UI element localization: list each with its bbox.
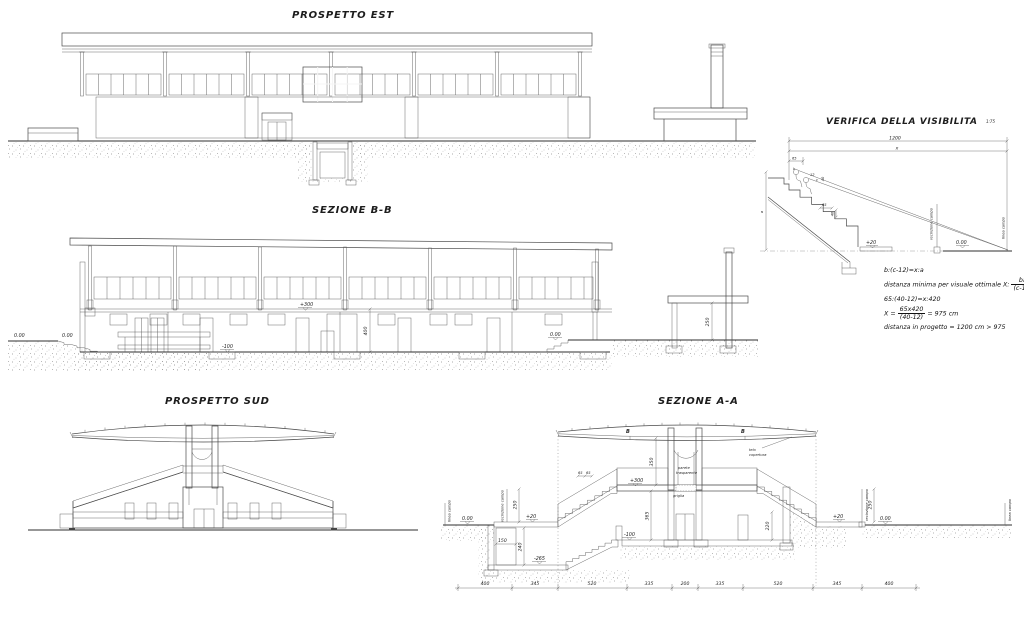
verifica-linea-campo: linea campo [1002,216,1006,239]
formula-4-den: (40-12) [898,314,926,321]
bb-level-field: 0.00 [14,333,25,339]
tribune-section [666,248,748,353]
griglia-label: griglia [673,494,684,498]
aa-linea-campo-left: linea campo [448,499,452,522]
prospetto-est-drawing: PROSPETTO EST [8,10,756,185]
verifica-walkway [860,247,892,251]
bb-height-dim: 400 [363,327,369,336]
section-b-marker-left: B [626,429,630,435]
aa-interior-dim: 365 [645,512,651,521]
step-dim-b: 65 [586,471,591,475]
siding-band [96,97,590,138]
aa-plus20-right: +20 [833,514,843,520]
bb-level-ramp: 0.00 [62,333,73,339]
side-building [654,44,747,141]
formula-2: distanza minima per visuale ottimale X: … [884,277,1024,292]
windows [125,503,281,519]
right-exit [540,262,758,352]
formula-1: b:(c-12)=x:a [884,264,1024,277]
sheet-svg: PROSPETTO EST [0,0,1024,617]
aa-level-minus100: -100 [624,532,635,538]
prospetto-est-title: PROSPETTO EST [292,10,394,21]
side-walls [664,119,736,141]
formula-2-den: (c-12) [1011,285,1024,292]
gray-cabinet [321,331,334,352]
aa-under-floor [620,546,795,560]
aa-linea-campo-right: linea campo [1008,498,1012,521]
chain-seg-6: 335 [716,581,725,587]
aa-level-minus265: -265 [534,556,545,562]
aa-under-trench [480,570,630,583]
underground-stair [566,540,618,570]
visibility-formulas: b:(c-12)=x:a distanza minima per visuale… [884,264,1024,335]
left-end-wall [80,262,85,352]
ground-texture [8,142,756,158]
left-annex [28,128,78,141]
bb-level-beam: +300 [300,302,313,308]
room-right-wall [783,487,790,543]
griglia-door [327,314,357,352]
roof-band [70,238,612,250]
aa-right-field [816,489,1012,527]
verifica-extension-lines [789,137,1007,251]
pylon-arch [192,449,212,460]
wing-left [60,514,73,528]
aa-recinzione-left: recinzione campo [501,489,505,522]
pylon-right [212,426,218,488]
aa-door-dim: 220 [765,522,771,531]
verifica-dim-a-line [765,171,768,252]
stair-strip-left [245,97,258,138]
balustrade-right [223,512,333,518]
canopy [70,423,336,443]
formula-2-text: distanza minima per visuale ottimale X: [884,282,1009,289]
trench-floor [488,565,568,570]
chain-seg-5: 200 [681,581,690,587]
aa-plus20-left: +20 [526,514,536,520]
verifica-stand-profile [768,178,892,274]
aa-canopy [556,423,818,441]
aa-fence-dim-left: 250 [513,501,519,510]
formula-2-fraction: ba(c-12) [1011,277,1024,292]
verifica-var-a: a [760,211,764,213]
aa-level-zero-right: 0.00 [880,516,891,522]
prospetto-sud-drawing: PROSPETTO SUD [28,396,418,531]
walkway-beam [80,309,612,312]
sezione-aa-title: SEZIONE A-A [658,396,739,407]
wing-right [333,514,346,528]
ladder-shaft [496,528,516,565]
verifica-zero: 0.00 [956,240,967,246]
verifica-recinzione: recinzione campo [930,207,934,240]
central-block-lines [183,466,223,505]
stand-slopes [73,465,333,528]
verifica-step-h: 40 [831,211,835,216]
verifica-dim-12: 12 [810,173,815,177]
core-wall-right [696,490,702,540]
side-roof-slab [654,108,747,119]
room-left-wall [616,526,622,540]
aa-level-plus300: +300 [630,478,643,484]
bb-tribune-dim: 250 [705,318,711,327]
aa-underground [484,487,793,576]
verifica-dim-40-eye: 40 [821,176,825,181]
parete-label-2: trasparente [676,471,698,475]
railing-top-right [702,468,757,485]
aa-shaft-dim: 150 [498,538,507,544]
bb-level-right: 0.00 [550,332,561,338]
griglia-opening [676,485,696,491]
spectator-figures [793,169,811,194]
aa-pylon-left [668,428,674,490]
footing-mark-left [69,528,75,531]
tribune-right-wall [726,252,732,348]
verifica-dim-x: x [895,147,899,152]
parete-label-1: parete [677,466,691,470]
canopy-purlins [85,423,325,433]
sezione-bb-drawing: SEZIONE B-B [8,205,758,371]
telo-label-2: copertura [749,453,767,457]
chimney [711,45,723,108]
sight-lines [799,171,1009,251]
verifica-scale: 1:75 [986,119,995,124]
formula-5: distanza in progetto = 1200 cm > 975 [884,321,1024,334]
verifica-dim-1200: 1200 [889,136,901,142]
aa-pylon-right [696,428,702,490]
verifica-step-w: 65 [822,203,827,207]
roof-eave-lines [62,49,592,52]
roof-fascia [62,33,592,46]
central-entrance [262,113,292,140]
chimney-cap [709,44,725,48]
sezione-bb-title: SEZIONE B-B [312,205,392,216]
stair-strip-right [568,97,590,138]
verifica-var-b: b [793,167,796,171]
stair-strip-center [405,97,418,138]
drawing-sheet: PROSPETTO EST [0,0,1024,617]
pit-void [312,142,353,178]
columns-section [87,246,600,310]
prospetto-sud-title: PROSPETTO SUD [165,396,270,407]
telo-label-1: telo [749,448,757,452]
central-gray-panels [303,67,362,102]
aa-recinzione-right: recinzione campo [865,488,869,521]
step-dim-a: 65 [578,471,583,475]
verifica-dim-65: 65 [792,157,797,161]
bb-level-floor: -100 [222,344,233,350]
section-b-marker-right: B [741,429,745,435]
single-door [738,515,748,540]
projection-lines [558,436,816,586]
ground-texture [75,353,612,370]
chain-seg-4: 335 [645,581,654,587]
tribune-slab [668,296,748,303]
verifica-var-c: c [816,178,818,182]
verifica-fence-base [934,247,940,253]
verifica-title: VERIFICA DELLA VISIBILITA [826,117,978,127]
aa-trench-dim: 240 [518,543,524,552]
floor-minus100 [622,540,792,546]
aa-ground-right [862,525,1012,538]
chain-seg-7: 520 [774,581,783,587]
chain-seg-8: 345 [833,581,842,587]
chain-seg-2: 345 [531,581,540,587]
chain-seg-9: 400 [885,581,894,587]
aa-canopy-purlins [572,423,806,432]
aa-steps-right [757,469,816,527]
aa-steps-left [558,469,617,527]
formula-3: 65:(40-12)=x:420 [884,293,1024,306]
formula-4-pre: X = [884,311,896,318]
formula-4-num: 65x420 [898,306,926,314]
formula-4-fraction: 65x420(40-12) [898,306,926,321]
interior-doors [135,318,500,352]
aa-level-zero-left: 0.00 [462,516,473,522]
chain-seg-3: 520 [588,581,597,587]
verifica-plus20: +20 [866,240,876,246]
formula-2-num: ba [1011,277,1024,285]
footing-mark-right [331,528,337,531]
aa-canopy-dim: 350 [649,458,655,467]
formula-4: X = 65x420(40-12) = 975 cm [884,306,1024,321]
verifica-drawing: VERIFICA DELLA VISIBILITA 1:75 1200 x 65… [760,117,1012,274]
balustrade-left [73,512,183,518]
formula-4-post: = 975 cm [927,311,958,318]
sezione-aa-drawing: SEZIONE A-A B B telo copertura parete tr… [440,396,1012,591]
pylon-left [186,426,192,488]
chain-seg-1: 400 [481,581,490,587]
